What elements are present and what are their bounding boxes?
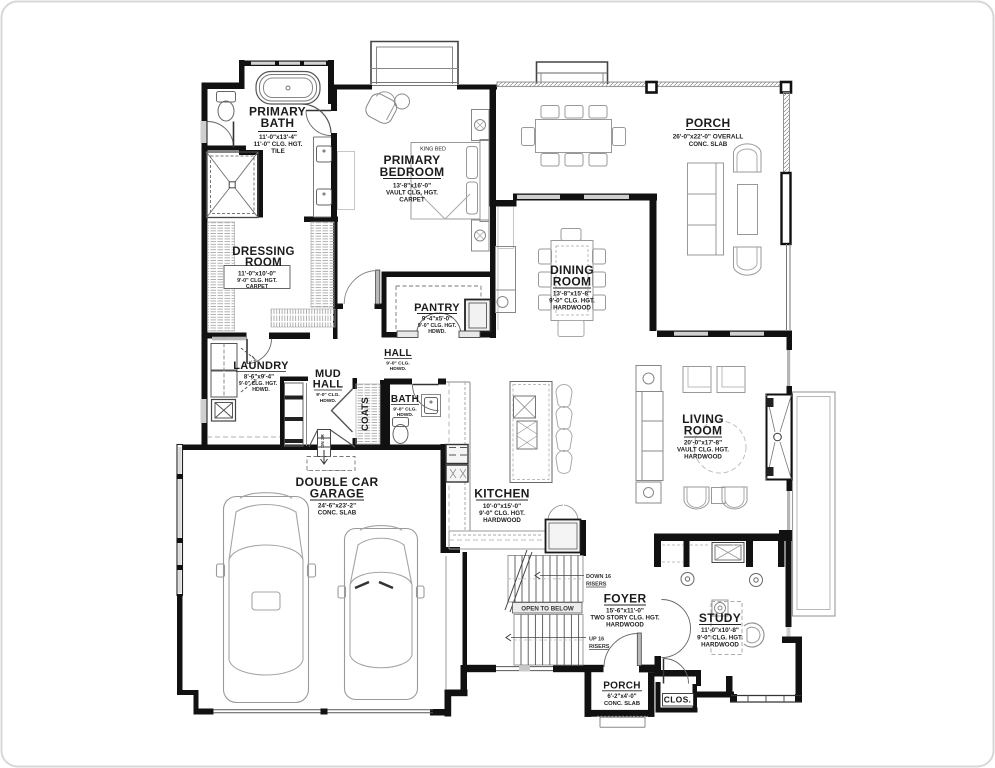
svg-text:11'-0" CLG. HGT.: 11'-0" CLG. HGT. <box>254 141 303 148</box>
svg-text:26'-0"x22'-0" OVERALL: 26'-0"x22'-0" OVERALL <box>673 134 744 141</box>
svg-text:9'-0" CLG. HGT.: 9'-0" CLG. HGT. <box>549 298 595 305</box>
svg-text:GARAGE: GARAGE <box>310 487 364 501</box>
svg-text:FOYER: FOYER <box>604 592 647 606</box>
svg-text:STUDY: STUDY <box>699 611 741 625</box>
svg-text:9'-0" CLG. HGT.: 9'-0" CLG. HGT. <box>479 510 525 517</box>
svg-text:BATH: BATH <box>391 394 419 405</box>
svg-text:BATH: BATH <box>261 116 295 130</box>
svg-text:11'-0"x10'-8": 11'-0"x10'-8" <box>701 627 739 634</box>
svg-text:24'-6"x23'-2": 24'-6"x23'-2" <box>318 503 356 510</box>
svg-text:KITCHEN: KITCHEN <box>474 487 529 501</box>
svg-text:RISERS: RISERS <box>586 582 607 588</box>
svg-text:CONC. SLAB: CONC. SLAB <box>604 701 640 707</box>
svg-text:CLOS.: CLOS. <box>664 695 691 705</box>
svg-text:VAULT CLG. HGT.: VAULT CLG. HGT. <box>386 190 438 197</box>
svg-text:9'-0" CLG. HGT.: 9'-0" CLG. HGT. <box>697 635 743 642</box>
svg-text:8'-6"x9'-4": 8'-6"x9'-4" <box>244 374 274 381</box>
svg-text:9'-0" CLG.: 9'-0" CLG. <box>316 392 340 398</box>
svg-text:9'-0" CLG.: 9'-0" CLG. <box>386 361 410 367</box>
svg-text:TILE: TILE <box>271 148 284 155</box>
svg-text:HARDWOOD: HARDWOOD <box>606 622 644 629</box>
svg-text:HARDWOOD: HARDWOOD <box>553 305 591 312</box>
svg-text:HDWD.: HDWD. <box>397 412 414 418</box>
svg-text:UP 16: UP 16 <box>589 637 604 643</box>
svg-text:9'-0" CLG.: 9'-0" CLG. <box>393 407 417 413</box>
svg-text:15'-6"x11'-0": 15'-6"x11'-0" <box>606 608 644 615</box>
svg-text:DOWN 16: DOWN 16 <box>586 574 611 580</box>
svg-text:HDWD.: HDWD. <box>428 329 446 335</box>
svg-text:PORCH: PORCH <box>686 116 731 130</box>
svg-text:HARDWOOD: HARDWOOD <box>684 454 722 461</box>
svg-text:CARPET: CARPET <box>246 284 269 290</box>
svg-text:VAULT CLG. HGT.: VAULT CLG. HGT. <box>677 447 729 454</box>
svg-text:HALL: HALL <box>384 348 412 359</box>
svg-text:11'-0"x10'-0": 11'-0"x10'-0" <box>238 271 276 278</box>
svg-text:KING BED: KING BED <box>420 147 446 153</box>
svg-text:CARPET: CARPET <box>399 197 425 204</box>
svg-text:OPEN TO BELOW: OPEN TO BELOW <box>521 606 574 613</box>
svg-text:PANTRY: PANTRY <box>414 302 460 314</box>
svg-text:11'-0"x13'-4": 11'-0"x13'-4" <box>259 134 297 141</box>
svg-text:10'-0"x15'-0": 10'-0"x15'-0" <box>483 503 521 510</box>
svg-text:HALL: HALL <box>313 379 344 391</box>
svg-text:ROOM: ROOM <box>553 275 592 289</box>
svg-text:9'-4"x5'-0": 9'-4"x5'-0" <box>422 316 452 323</box>
svg-text:CONC. SLAB: CONC. SLAB <box>689 141 728 148</box>
svg-text:COATS: COATS <box>360 397 371 431</box>
svg-text:ROOM: ROOM <box>245 257 282 269</box>
svg-text:DN 3R: DN 3R <box>320 433 325 447</box>
svg-text:20'-0"x17'-8": 20'-0"x17'-8" <box>684 440 722 447</box>
svg-text:LAUNDRY: LAUNDRY <box>233 360 289 372</box>
svg-text:TWO STORY CLG. HGT.: TWO STORY CLG. HGT. <box>590 615 660 622</box>
svg-text:HARDWOOD: HARDWOOD <box>701 642 739 649</box>
svg-text:13'-8"x15'-8": 13'-8"x15'-8" <box>553 291 591 298</box>
svg-text:6'-2"x4'-0": 6'-2"x4'-0" <box>607 694 636 700</box>
svg-text:HARDWOOD: HARDWOOD <box>483 517 521 524</box>
svg-text:RISERS: RISERS <box>589 644 610 650</box>
svg-text:ROOM: ROOM <box>684 424 723 438</box>
svg-text:HDWD.: HDWD. <box>252 387 270 393</box>
svg-text:13'-8"x16'-0": 13'-8"x16'-0" <box>393 183 431 190</box>
svg-text:BEDROOM: BEDROOM <box>380 165 445 179</box>
svg-text:CONC. SLAB: CONC. SLAB <box>318 510 357 517</box>
svg-text:HDWD.: HDWD. <box>320 398 337 404</box>
svg-text:PORCH: PORCH <box>603 681 641 692</box>
svg-text:HDWD.: HDWD. <box>390 366 407 372</box>
